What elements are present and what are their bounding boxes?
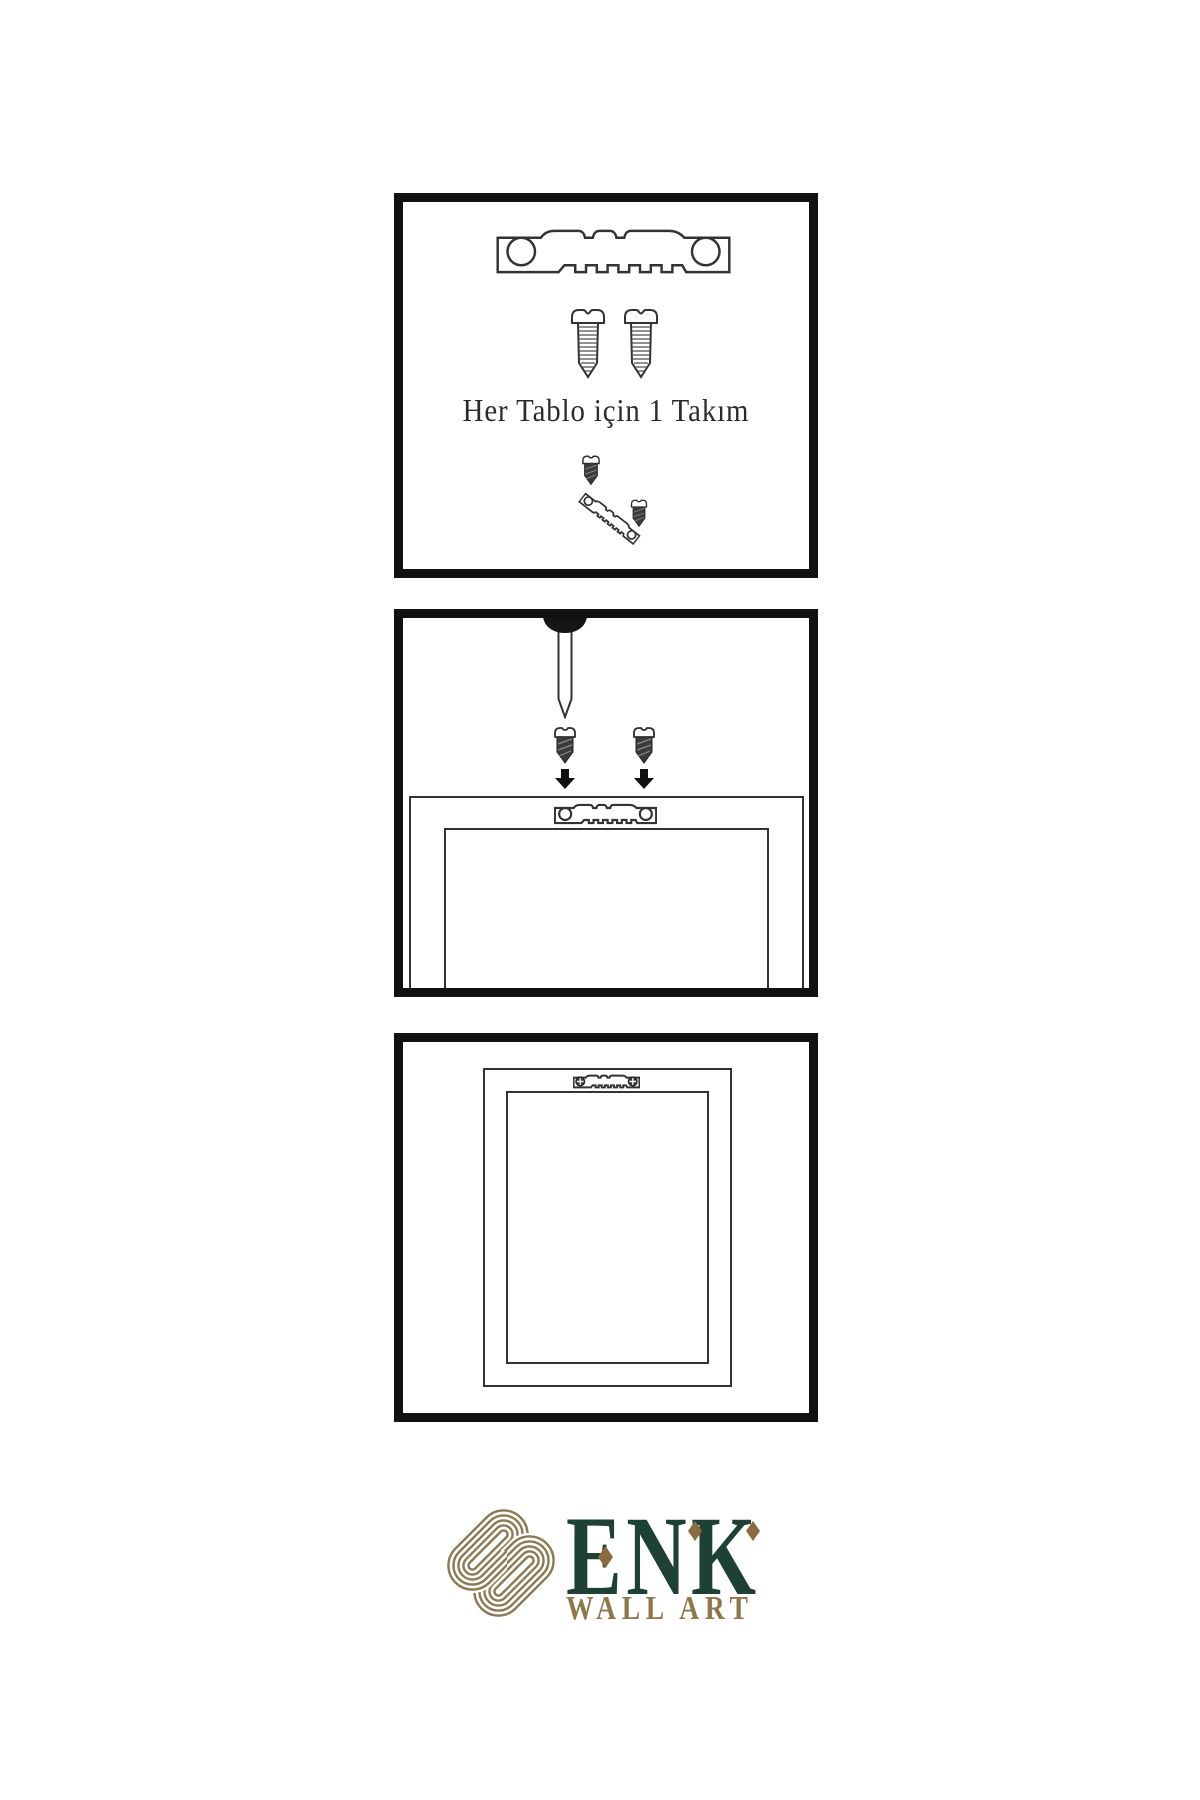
logo-tagline: WALL ART bbox=[566, 1592, 754, 1626]
kit-caption: Her Tablo için 1 Takım bbox=[423, 392, 788, 429]
sawtooth-hanger-icon bbox=[495, 225, 732, 278]
arrow-down-icon bbox=[634, 769, 654, 789]
screw-icon bbox=[570, 305, 606, 383]
sawtooth-hanger-with-screws-icon bbox=[573, 1073, 640, 1090]
step-3-panel bbox=[394, 1033, 818, 1422]
frame-back-outline bbox=[409, 796, 804, 997]
frame-inner-outline bbox=[506, 1091, 709, 1364]
instruction-sheet: Her Tablo için 1 Takım bbox=[0, 0, 1200, 1800]
step-2-panel bbox=[394, 609, 818, 997]
step-1-panel: Her Tablo için 1 Takım bbox=[394, 193, 818, 578]
frame-back-outline bbox=[483, 1068, 732, 1387]
screw-icon bbox=[553, 724, 577, 766]
nail-icon bbox=[542, 617, 588, 719]
arrow-down-icon bbox=[555, 769, 575, 789]
knot-logo-icon bbox=[441, 1503, 561, 1623]
screw-icon bbox=[630, 497, 648, 529]
screw-icon bbox=[632, 724, 656, 766]
frame-inner-outline bbox=[444, 828, 769, 997]
screw-icon bbox=[581, 453, 601, 487]
sawtooth-hanger-icon bbox=[554, 802, 657, 826]
screw-icon bbox=[623, 305, 659, 383]
